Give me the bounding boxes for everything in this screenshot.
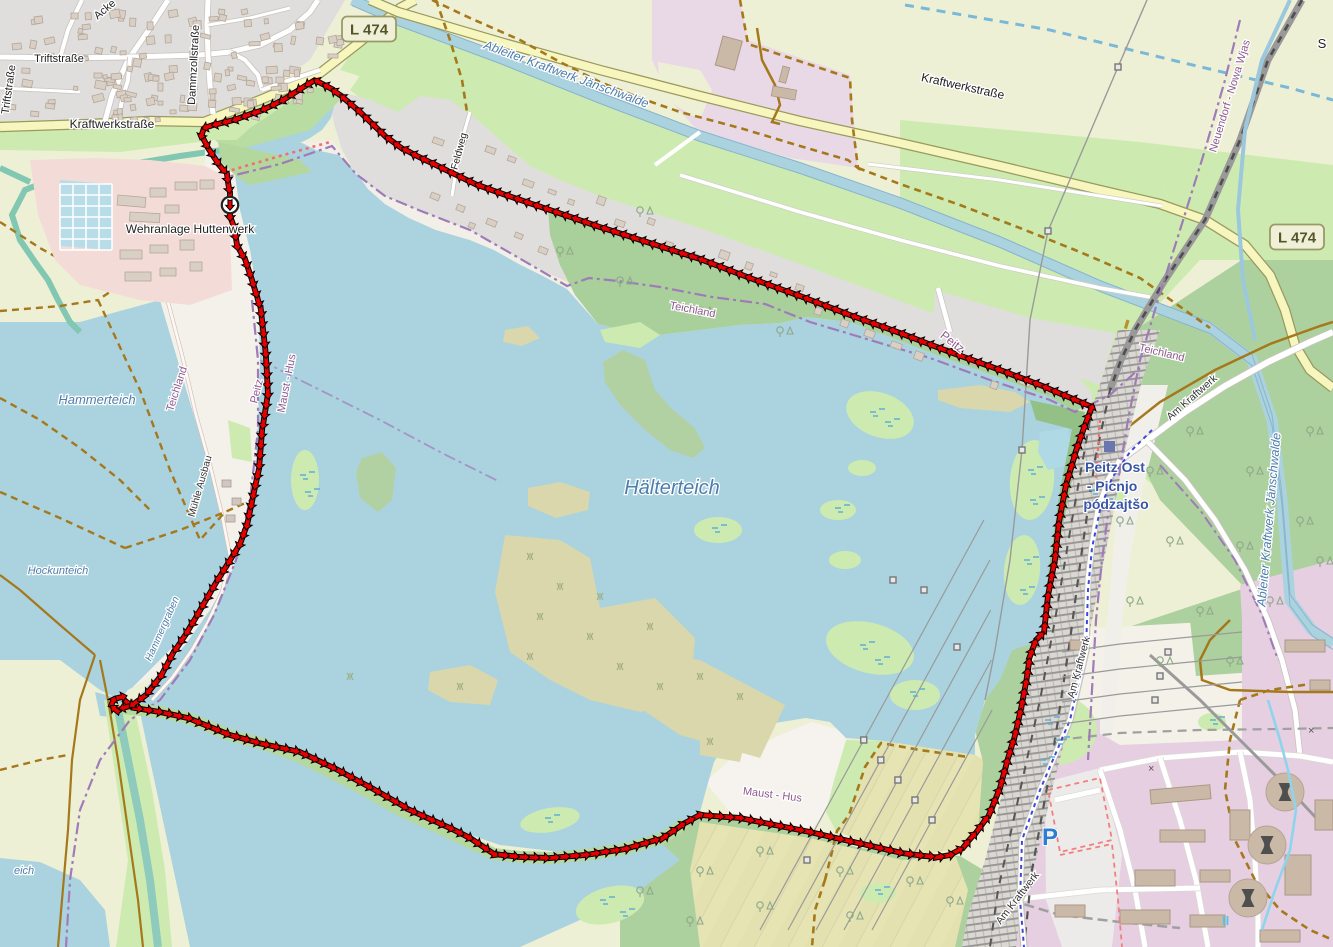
- svg-text:Kraftwerkstraße: Kraftwerkstraße: [70, 117, 155, 131]
- svg-text:Hammerteich: Hammerteich: [58, 392, 135, 407]
- svg-text:eich: eich: [14, 865, 34, 877]
- svg-text:L 474: L 474: [1278, 230, 1317, 247]
- svg-text:×: ×: [1308, 725, 1314, 737]
- svg-text:L 474: L 474: [350, 22, 389, 39]
- svg-text:Peitz Ost: Peitz Ost: [1085, 459, 1145, 475]
- svg-text:Hälterteich: Hälterteich: [624, 477, 720, 499]
- svg-text:pódzajtšo: pódzajtšo: [1083, 496, 1148, 512]
- svg-text:P: P: [1042, 824, 1058, 851]
- svg-text:Triftstraße: Triftstraße: [34, 53, 84, 65]
- svg-text:Wehranlage Huttenwerk: Wehranlage Huttenwerk: [126, 222, 256, 236]
- svg-text:- Picnjo: - Picnjo: [1087, 478, 1138, 494]
- svg-text:II: II: [1222, 913, 1229, 928]
- svg-text:×: ×: [1148, 763, 1154, 775]
- svg-text:Hockunteich: Hockunteich: [28, 565, 89, 577]
- svg-text:S: S: [1318, 36, 1327, 51]
